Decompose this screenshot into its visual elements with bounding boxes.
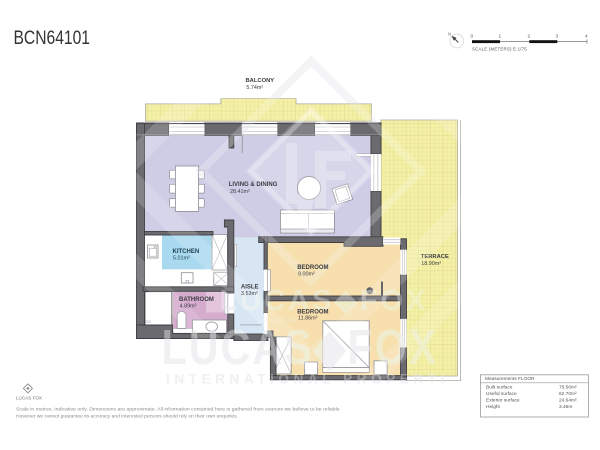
- svg-text:KITCHEN: KITCHEN: [173, 249, 200, 255]
- svg-text:0: 0: [471, 34, 474, 40]
- svg-text:INTERNATIONAL PROPERTI: INTERNATIONAL PROPERTI: [166, 372, 449, 387]
- svg-text:11.86m²: 11.86m²: [298, 316, 318, 322]
- svg-text:9.00m²: 9.00m²: [298, 272, 315, 278]
- svg-text:18.90m²: 18.90m²: [421, 261, 441, 267]
- svg-text:3.53m²: 3.53m²: [241, 291, 258, 297]
- svg-text:BEDROOM: BEDROOM: [297, 265, 328, 271]
- svg-text:75.50m²: 75.50m²: [559, 385, 577, 391]
- svg-text:However we cannot guarantee it: However we cannot guarantee its accuracy…: [16, 414, 238, 419]
- svg-text:SCALE (METERS) E:1/75: SCALE (METERS) E:1/75: [472, 47, 527, 52]
- svg-text:DC: DC: [146, 320, 152, 324]
- svg-text:3: 3: [556, 34, 559, 40]
- svg-text:Measurements FLOOR: Measurements FLOOR: [485, 376, 535, 382]
- svg-text:LUCAS◆FOX: LUCAS◆FOX: [162, 320, 439, 375]
- svg-text:Built surface: Built surface: [486, 385, 513, 391]
- svg-text:5.01m²: 5.01m²: [173, 256, 190, 262]
- svg-text:Exterior surface: Exterior surface: [486, 398, 520, 404]
- svg-text:4.89m²: 4.89m²: [180, 303, 197, 309]
- svg-text:Useful surface: Useful surface: [486, 391, 517, 397]
- svg-text:LUCAS FOX: LUCAS FOX: [16, 396, 42, 401]
- svg-text:1: 1: [499, 34, 502, 40]
- svg-text:BCN64101: BCN64101: [14, 28, 91, 49]
- svg-text:BATHROOM: BATHROOM: [179, 297, 214, 303]
- svg-text:5.74m²: 5.74m²: [246, 85, 263, 91]
- svg-text:BALCONY: BALCONY: [246, 78, 275, 84]
- svg-text:24.64m²: 24.64m²: [559, 398, 577, 404]
- svg-text:4: 4: [585, 34, 588, 40]
- svg-text:28.41m²: 28.41m²: [230, 189, 250, 195]
- svg-text:2: 2: [528, 34, 531, 40]
- svg-text:Height: Height: [486, 404, 501, 410]
- svg-text:LIVING & DINING: LIVING & DINING: [229, 182, 278, 188]
- svg-text:Scale in metres. Indicative on: Scale in metres. Indicative only. Dimens…: [16, 407, 341, 412]
- svg-text:62.70m²: 62.70m²: [559, 391, 577, 397]
- svg-text:BEDROOM: BEDROOM: [297, 310, 328, 316]
- svg-text:AISLE: AISLE: [241, 285, 259, 291]
- svg-text:3.46m: 3.46m: [559, 404, 572, 410]
